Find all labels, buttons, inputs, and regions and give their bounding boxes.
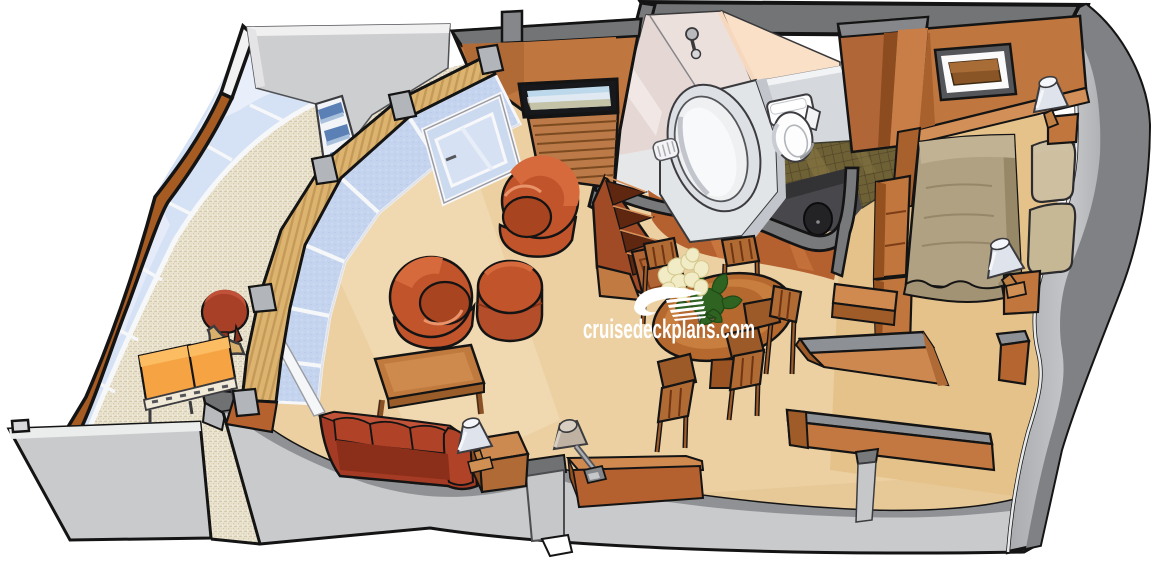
svg-text:cruisedeckplans.com: cruisedeckplans.com <box>583 314 755 344</box>
